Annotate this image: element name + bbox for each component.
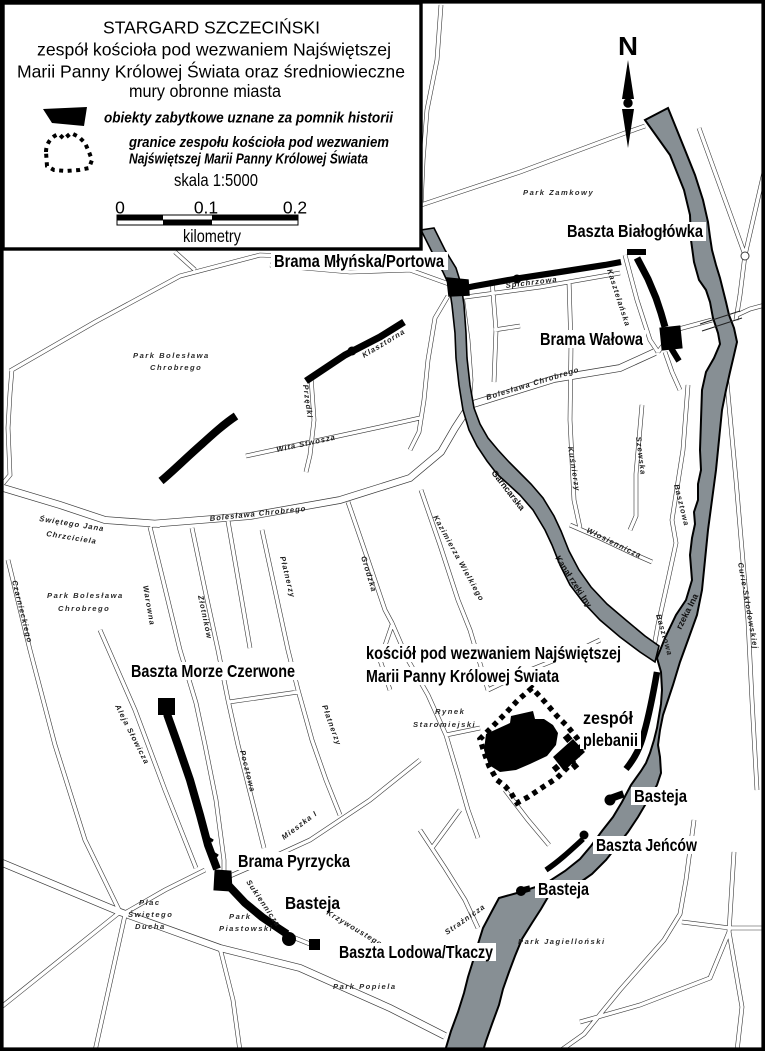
svg-text:obiekty zabytkowe uznane za po: obiekty zabytkowe uznane za pomnik histo… [104, 111, 394, 127]
svg-text:Brama Młyńska/Portowa: Brama Młyńska/Portowa [274, 251, 444, 271]
svg-text:Najświętszej Marii Panny Królo: Najświętszej Marii Panny Królowej Świata [129, 150, 368, 168]
svg-text:N: N [618, 31, 638, 61]
svg-text:Baszta Lodowa/Tkaczy: Baszta Lodowa/Tkaczy [339, 942, 493, 962]
svg-text:STARGARD SZCZECIŃSKI: STARGARD SZCZECIŃSKI [103, 18, 320, 38]
svg-text:plebanii: plebanii [583, 730, 638, 750]
svg-text:Piastowski: Piastowski [219, 924, 273, 933]
svg-text:Basteja: Basteja [634, 786, 687, 806]
svg-text:granice zespołu kościoła pod w: granice zespołu kościoła pod wezwaniem [128, 135, 389, 151]
svg-text:Park Popiela: Park Popiela [333, 982, 397, 991]
svg-text:Baszta Jeńców: Baszta Jeńców [596, 835, 697, 855]
svg-text:Plac: Plac [139, 898, 161, 907]
svg-text:Baszta Białogłówka: Baszta Białogłówka [567, 221, 703, 241]
svg-text:skala 1:5000: skala 1:5000 [174, 170, 258, 190]
svg-text:Park Jagielloński: Park Jagielloński [518, 937, 606, 946]
svg-text:Park: Park [229, 912, 251, 921]
svg-text:Brama Wałowa: Brama Wałowa [540, 329, 643, 349]
svg-text:mury obronne miasta: mury obronne miasta [129, 81, 281, 101]
svg-text:Chrobrego: Chrobrego [150, 363, 202, 372]
svg-text:Basteja: Basteja [285, 893, 340, 913]
svg-text:Park Bolesława: Park Bolesława [47, 591, 124, 600]
svg-text:Basteja: Basteja [538, 879, 589, 899]
svg-text:Park Zamkowy: Park Zamkowy [523, 188, 594, 197]
svg-text:zespół kościoła pod wezwaniem: zespół kościoła pod wezwaniem Najświętsz… [37, 40, 391, 60]
svg-text:zespół: zespół [583, 708, 633, 728]
svg-text:Staromiejski: Staromiejski [413, 720, 476, 729]
svg-text:Ducha: Ducha [135, 922, 166, 931]
svg-text:kilometry: kilometry [183, 226, 241, 246]
svg-text:Rynek: Rynek [435, 707, 465, 716]
svg-text:Świętego: Świętego [128, 910, 173, 919]
svg-text:kościół pod wezwaniem Najświęt: kościół pod wezwaniem Najświętszej [366, 643, 621, 663]
svg-text:Brama Pyrzycka: Brama Pyrzycka [238, 851, 350, 871]
svg-text:Baszta Morze Czerwone: Baszta Morze Czerwone [131, 661, 295, 681]
svg-text:Marii Panny Królowej Świata: Marii Panny Królowej Świata [366, 665, 559, 686]
svg-text:Park Bolesława: Park Bolesława [133, 351, 210, 360]
svg-text:Marii Panny Królowej Świata or: Marii Panny Królowej Świata oraz średnio… [17, 61, 405, 82]
svg-text:Chrobrego: Chrobrego [58, 604, 110, 613]
